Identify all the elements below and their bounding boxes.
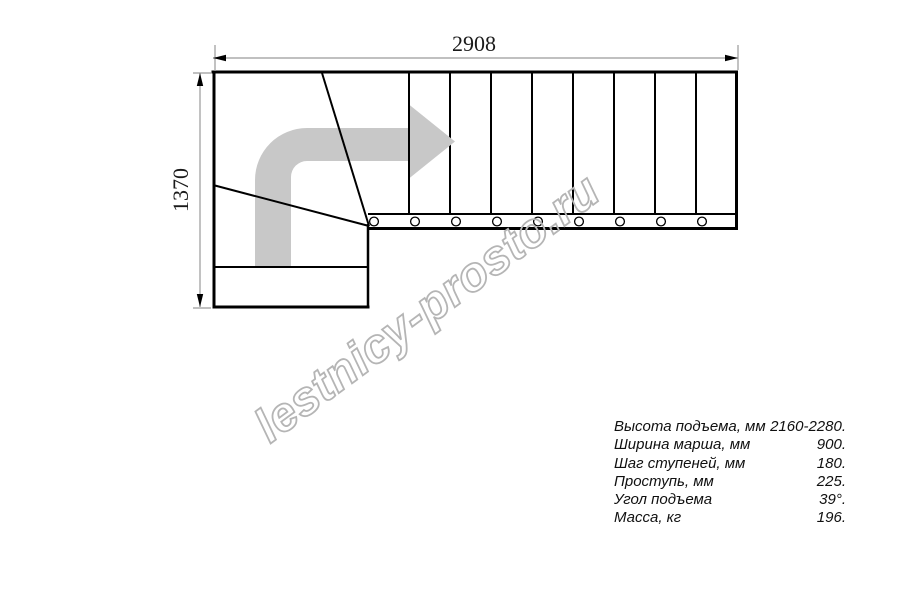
baluster-circle xyxy=(452,217,461,226)
spec-value: 2160-2280. xyxy=(770,418,846,436)
spec-label: Ширина марша, мм xyxy=(614,436,750,454)
overlay-step-lines xyxy=(213,72,409,267)
dimension-height-label: 1370 xyxy=(168,168,193,212)
spec-table: Высота подъема, мм 2160-2280. Ширина мар… xyxy=(614,418,846,528)
spec-row: Проступь, мм 225. xyxy=(614,473,846,491)
baluster-circle xyxy=(657,217,666,226)
spec-value: 39°. xyxy=(819,491,846,509)
spec-label: Шаг ступеней, мм xyxy=(614,455,745,473)
staircase-drawing-page: 2908 1370 lestnicy-prosto.ru Высота подъ… xyxy=(0,0,900,600)
dimension-left: 1370 xyxy=(168,73,211,308)
spec-row: Шаг ступеней, мм 180. xyxy=(614,455,846,473)
baluster-circle xyxy=(616,217,625,226)
spec-label: Угол подъема xyxy=(614,491,712,509)
spec-row: Масса, кг 196. xyxy=(614,509,846,527)
dimension-width-label: 2908 xyxy=(452,31,496,56)
dimension-arrow-up-icon xyxy=(197,73,203,86)
spec-value: 900. xyxy=(817,436,846,454)
spec-value: 180. xyxy=(817,455,846,473)
baluster-circle xyxy=(698,217,707,226)
baluster-circle xyxy=(370,217,379,226)
dimension-arrow-down-icon xyxy=(197,294,203,307)
spec-label: Масса, кг xyxy=(614,509,681,527)
spec-label: Проступь, мм xyxy=(614,473,714,491)
spec-value: 196. xyxy=(817,509,846,527)
spec-row: Ширина марша, мм 900. xyxy=(614,436,846,454)
baluster-circle xyxy=(411,217,420,226)
spec-row: Высота подъема, мм 2160-2280. xyxy=(614,418,846,436)
spec-row: Угол подъема 39°. xyxy=(614,491,846,509)
dimension-arrow-right-icon xyxy=(725,55,738,61)
spec-value: 225. xyxy=(817,473,846,491)
direction-arrow xyxy=(255,105,455,268)
spec-label: Высота подъема, мм xyxy=(614,418,766,436)
dimension-top: 2908 xyxy=(213,31,738,71)
